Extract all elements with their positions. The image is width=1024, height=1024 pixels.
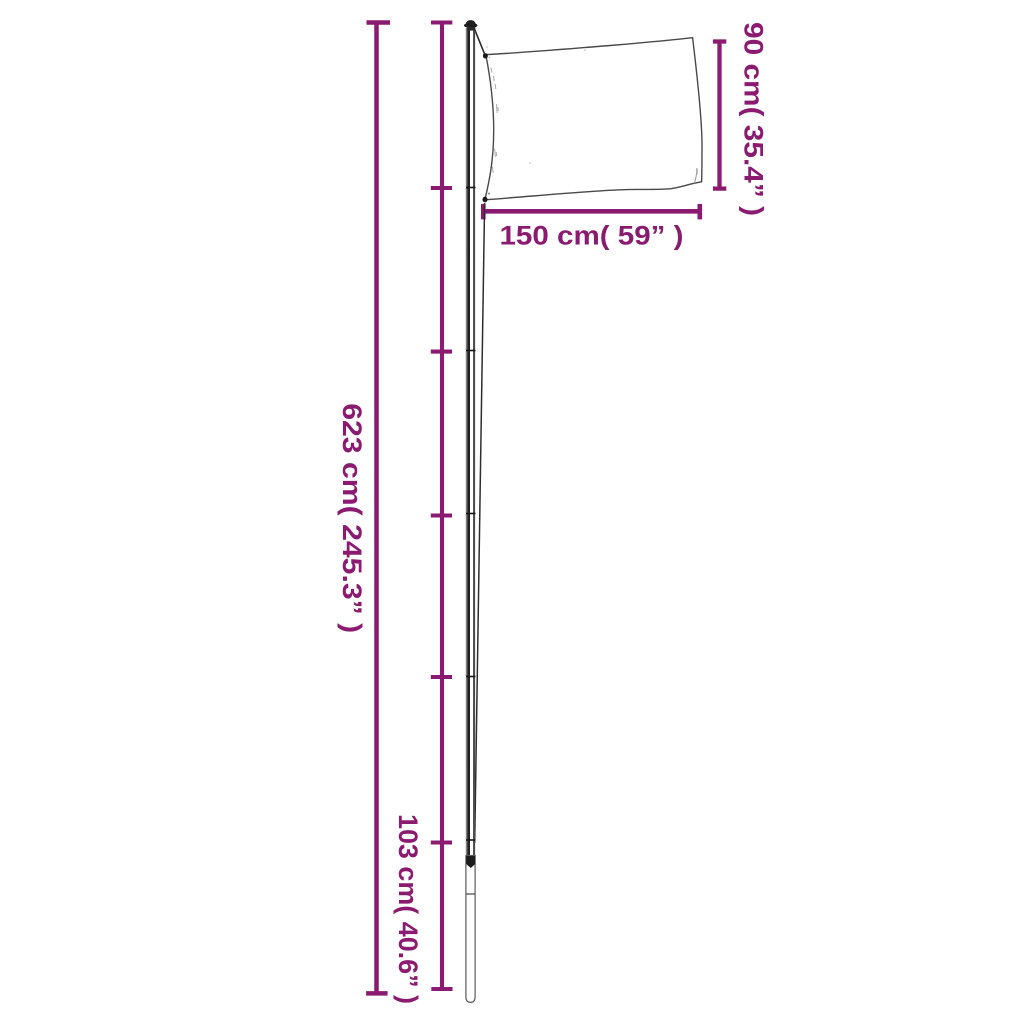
- svg-text:623 cm( 245.3” ): 623 cm( 245.3” ): [337, 403, 367, 633]
- svg-text:150 cm( 59” ): 150 cm( 59” ): [500, 221, 684, 251]
- svg-text:90 cm( 35.4” ): 90 cm( 35.4” ): [739, 22, 769, 216]
- svg-text:103 cm( 40.6” ): 103 cm( 40.6” ): [393, 814, 423, 1004]
